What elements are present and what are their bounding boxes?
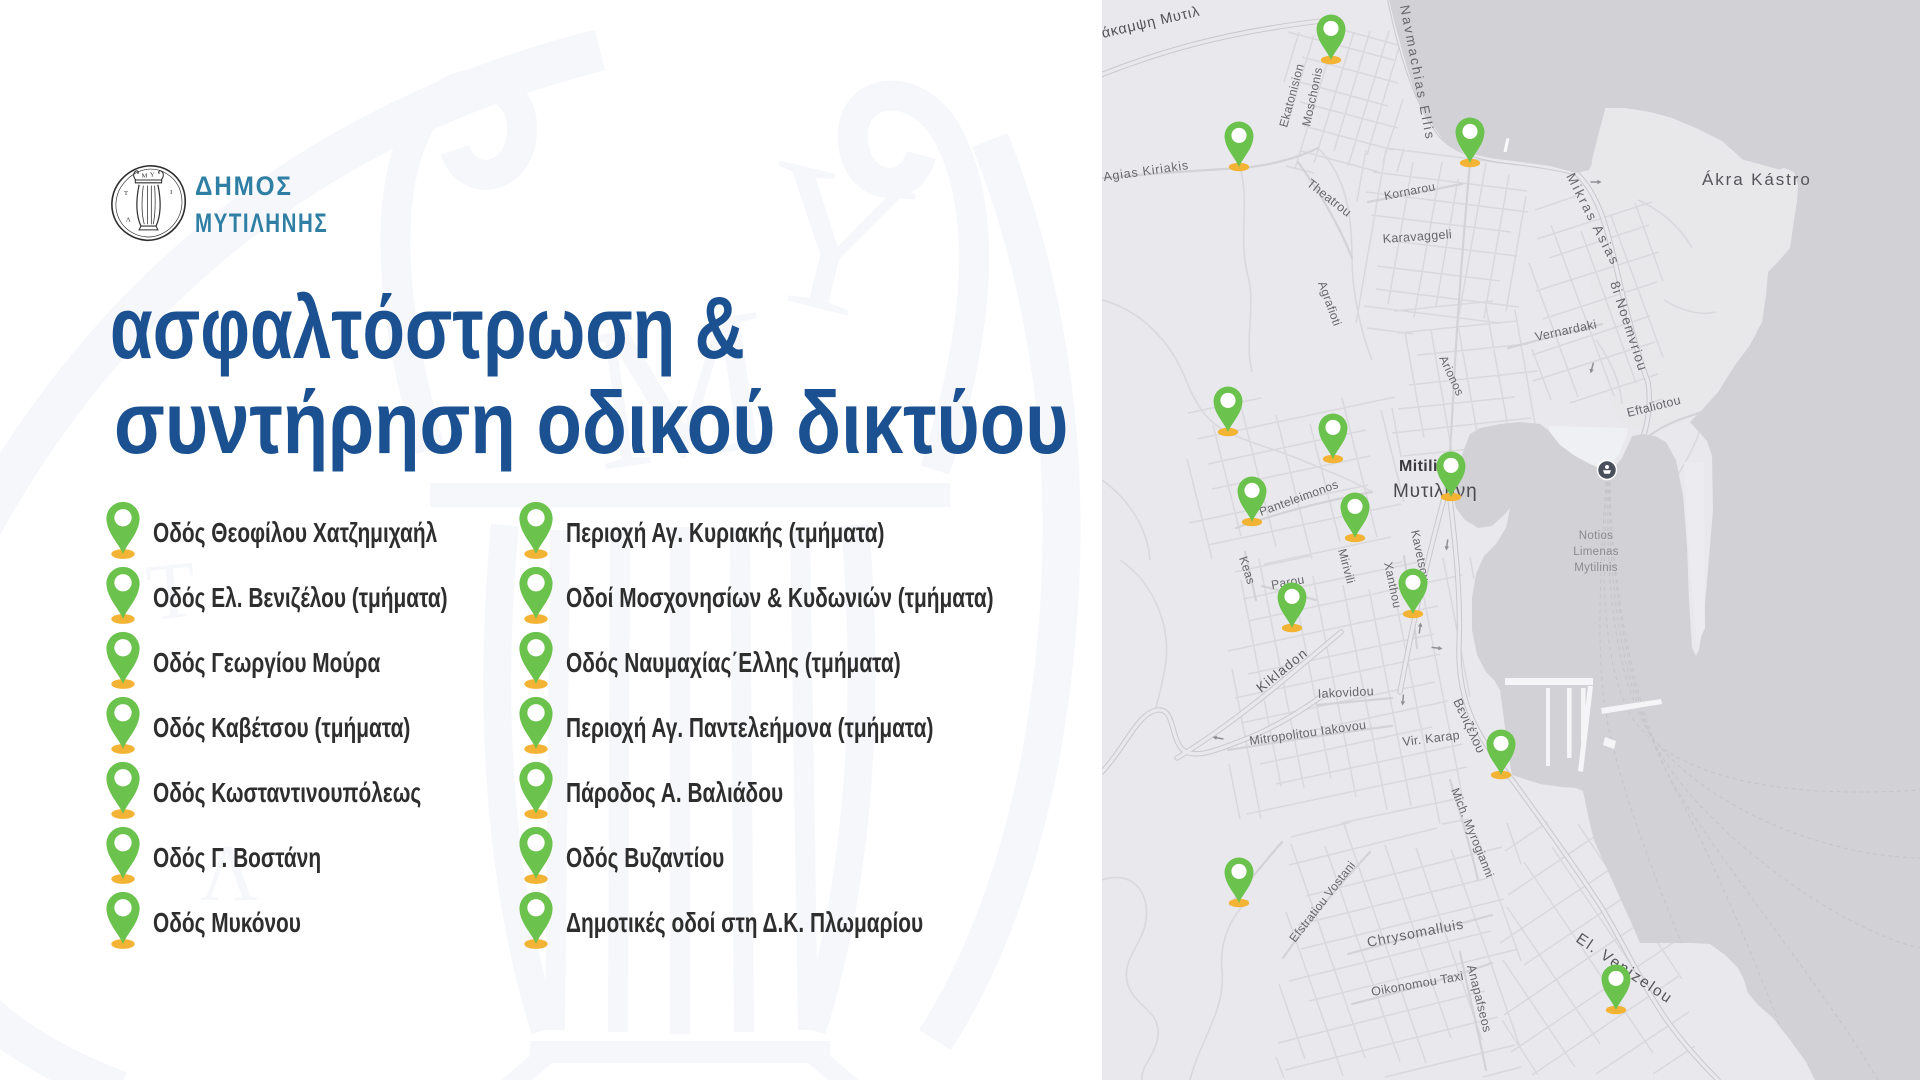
svg-text:Limenas: Limenas: [1573, 546, 1619, 558]
svg-text:Notios: Notios: [1579, 530, 1613, 542]
svg-text:Ι: Ι: [170, 189, 172, 196]
svg-text:Μ: Μ: [141, 173, 147, 180]
svg-text:Μυτιλήνη: Μυτιλήνη: [1393, 481, 1477, 502]
svg-text:Ákra Kástro: Ákra Kástro: [1702, 170, 1812, 189]
svg-text:Λ: Λ: [126, 216, 131, 223]
svg-text:Mytilinis: Mytilinis: [1574, 562, 1618, 574]
svg-text:Iakovidou: Iakovidou: [1317, 684, 1374, 701]
svg-text:Τ: Τ: [124, 190, 128, 197]
svg-text:Υ: Υ: [734, 113, 933, 369]
svg-text:Υ: Υ: [150, 172, 155, 179]
